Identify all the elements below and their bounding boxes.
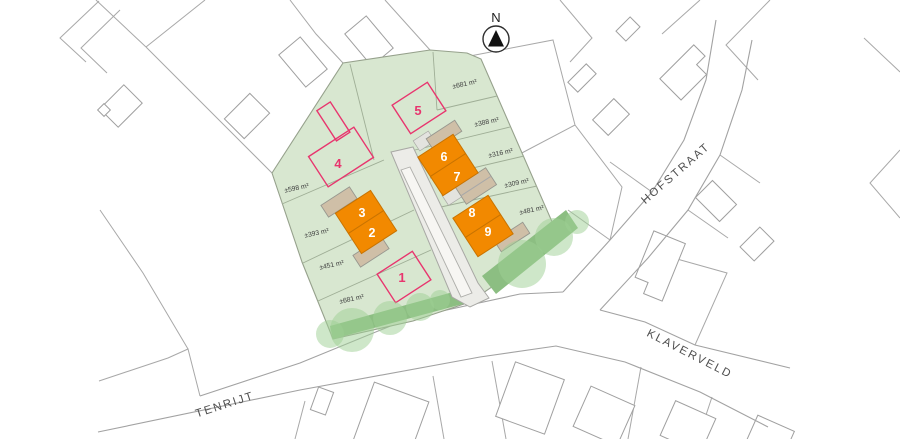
unit-6-number: 6 xyxy=(441,150,448,164)
lot-4-number: 4 xyxy=(334,156,342,171)
unit-9-number: 9 xyxy=(485,225,492,239)
background-house xyxy=(660,401,716,439)
unit-8-number: 8 xyxy=(469,206,476,220)
background-house xyxy=(496,362,565,434)
background-house xyxy=(631,231,686,301)
north-arrow: N xyxy=(483,10,509,52)
background-house xyxy=(573,386,635,439)
north-label: N xyxy=(491,10,500,25)
map-canvas: ±681 m² ±388 m² ±316 m² ±309 m² ±481 m² … xyxy=(0,0,900,439)
background-house xyxy=(568,64,596,92)
background-house xyxy=(351,382,429,439)
unit-2-number: 2 xyxy=(369,226,376,240)
background-house xyxy=(740,227,774,261)
background-house xyxy=(616,17,640,41)
unit-7-number: 7 xyxy=(454,170,461,184)
background-house xyxy=(279,37,327,87)
lot-1-number: 1 xyxy=(398,270,405,285)
site-plan-map: ±681 m² ±388 m² ±316 m² ±309 m² ±481 m² … xyxy=(0,0,900,439)
street-label-klaverveld: KLAVERVELD xyxy=(645,328,735,382)
lot-5-number: 5 xyxy=(414,103,421,118)
background-house xyxy=(310,387,333,415)
background-house xyxy=(593,99,630,136)
unit-3-number: 3 xyxy=(359,206,366,220)
